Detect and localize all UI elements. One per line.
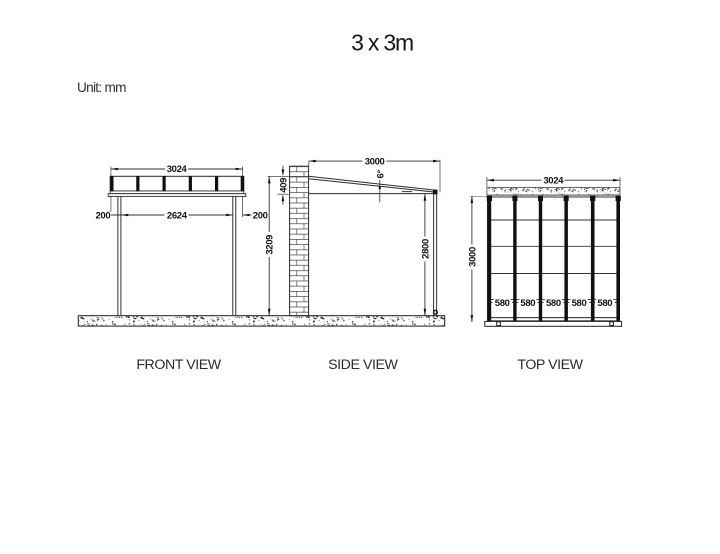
svg-text:409: 409 <box>278 178 289 193</box>
svg-text:580: 580 <box>495 298 510 309</box>
svg-text:FRONT VIEW: FRONT VIEW <box>136 357 221 373</box>
svg-text:580: 580 <box>520 298 535 309</box>
svg-text:3000: 3000 <box>365 156 385 167</box>
svg-text:580: 580 <box>546 298 561 309</box>
svg-text:3024: 3024 <box>543 175 564 186</box>
svg-text:3209: 3209 <box>265 235 276 255</box>
svg-text:200: 200 <box>95 211 110 222</box>
svg-text:3000: 3000 <box>467 247 478 267</box>
svg-text:SIDE VIEW: SIDE VIEW <box>328 357 398 373</box>
svg-text:200: 200 <box>253 211 268 222</box>
svg-text:580: 580 <box>597 298 612 309</box>
svg-text:580: 580 <box>572 298 587 309</box>
svg-text:6°: 6° <box>375 170 386 179</box>
svg-text:3 x 3m: 3 x 3m <box>351 29 413 55</box>
svg-text:2800: 2800 <box>420 239 431 259</box>
svg-text:TOP VIEW: TOP VIEW <box>517 357 583 373</box>
svg-text:2624: 2624 <box>167 210 188 221</box>
svg-text:3024: 3024 <box>167 164 188 175</box>
svg-text:Unit: mm: Unit: mm <box>77 80 126 95</box>
